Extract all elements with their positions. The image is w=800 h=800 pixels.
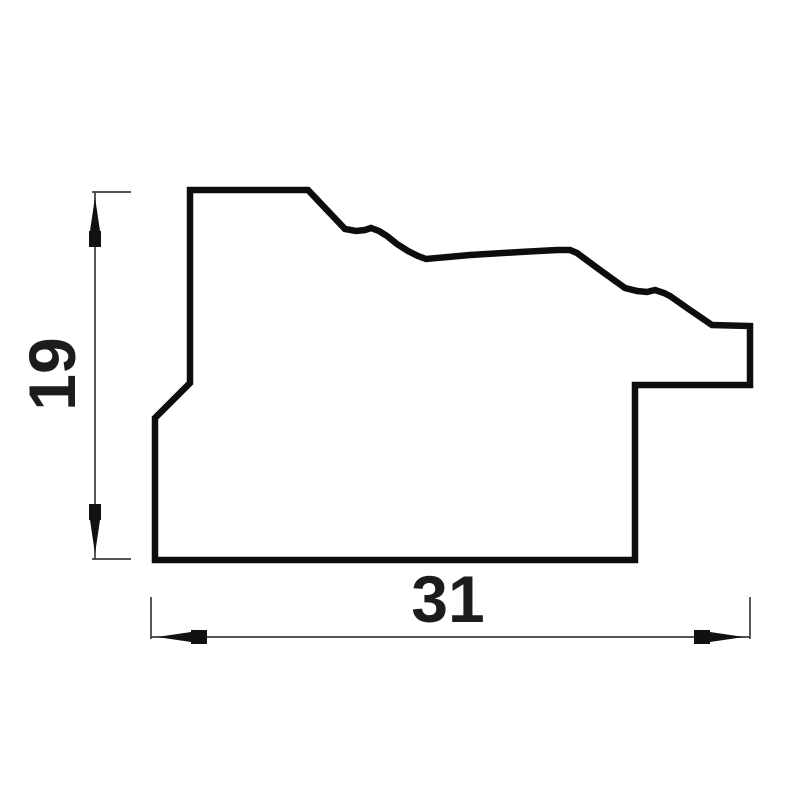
drawing-canvas: 19 31 (0, 0, 800, 800)
technical-drawing: 19 31 (0, 0, 800, 800)
width-dimension-label: 31 (411, 562, 484, 636)
height-dimension-label: 19 (15, 337, 89, 410)
